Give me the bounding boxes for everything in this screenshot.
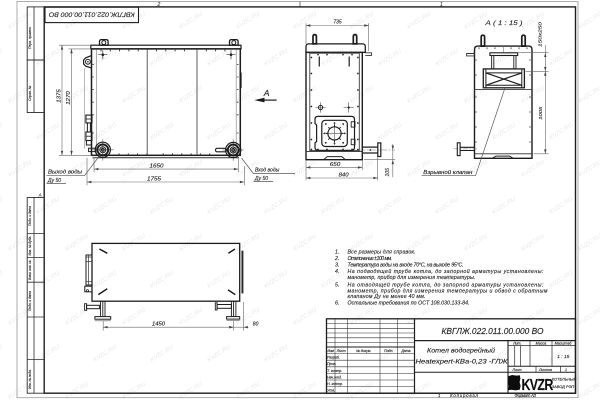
svg-text:№ докум.: № докум. (356, 349, 371, 353)
svg-text:Подп. и дата: Подп. и дата (28, 291, 32, 311)
svg-text:Лист: Лист (511, 368, 521, 372)
svg-text:Отклонение ±100 мм.: Отклонение ±100 мм. (348, 256, 393, 262)
svg-text:KVZR: KVZR (522, 376, 554, 394)
svg-text:Лист: Лист (336, 349, 346, 353)
svg-text:Разраб.: Разраб. (327, 356, 340, 360)
svg-text:А: А (38, 193, 42, 198)
svg-text:105: 105 (385, 168, 391, 177)
svg-text:Подп. и дата: Подп. и дата (28, 206, 32, 226)
svg-text:Вход воды: Вход воды (255, 168, 280, 174)
svg-text:Пров.: Пров. (327, 362, 336, 366)
svg-text:Все размеры для справок.: Все размеры для справок. (348, 249, 416, 255)
svg-text:6.: 6. (335, 301, 339, 307)
svg-text:манометр, прибор для измерения: манометр, прибор для измерения температу… (348, 275, 476, 281)
svg-text:4.: 4. (335, 269, 339, 275)
svg-text:Heatexpert-КВа-0,23 -ГЛЖ: Heatexpert-КВа-0,23 -ГЛЖ (416, 359, 509, 366)
svg-text:735: 735 (333, 20, 342, 26)
svg-text:Копировал: Копировал (450, 393, 479, 398)
svg-text:650: 650 (330, 162, 341, 168)
svg-text:Перв. примен.: Перв. примен. (28, 26, 32, 49)
svg-text:Т. контр.: Т. контр. (327, 369, 342, 373)
svg-text:Утв.: Утв. (327, 389, 335, 393)
svg-text:Выход воды: Выход воды (48, 170, 82, 176)
svg-text:150х250: 150х250 (538, 21, 543, 47)
svg-text:Формат А3: Формат А3 (515, 393, 537, 398)
svg-text:1755: 1755 (147, 176, 161, 182)
svg-text:КВГЛЖ.022.011.00.000 ВО: КВГЛЖ.022.011.00.000 ВО (442, 326, 544, 336)
svg-text:Дата: Дата (400, 349, 410, 353)
svg-text:Котел водогрейный: Котел водогрейный (427, 347, 495, 355)
svg-text:Ду 50: Ду 50 (254, 176, 268, 182)
svg-text:Взам. инв. №: Взам. инв. № (28, 260, 32, 280)
svg-text:80: 80 (253, 321, 259, 327)
svg-text:КВГЛЖ.022.011.00.000 ВО: КВГЛЖ.022.011.00.000 ВО (49, 10, 135, 17)
svg-text:1450: 1450 (152, 321, 165, 327)
svg-text:5.: 5. (335, 282, 339, 288)
svg-text:Инв. № подл.: Инв. № подл. (28, 369, 32, 389)
svg-text:840: 840 (339, 173, 349, 179)
svg-text:Масштаб: Масштаб (555, 342, 573, 346)
svg-text:Н. контр.: Н. контр. (327, 382, 343, 386)
svg-text:ЗАВОД РЭП: ЗАВОД РЭП (552, 384, 575, 389)
svg-text:1 : 15: 1 : 15 (557, 354, 569, 360)
svg-text:Масса: Масса (536, 342, 547, 346)
svg-text:1375: 1375 (57, 89, 63, 103)
svg-text:Температура воды на входе 70°С: Температура воды на входе 70°С, на выход… (348, 262, 464, 268)
svg-text:1270: 1270 (66, 91, 72, 105)
svg-text:1650: 1650 (150, 163, 164, 169)
svg-text:Инв. № дубл.: Инв. № дубл. (28, 236, 32, 256)
svg-text:Справ. №: Справ. № (28, 85, 32, 101)
svg-text:Нач.отд.: Нач.отд. (327, 375, 342, 379)
svg-text:Листов: Листов (538, 368, 552, 372)
svg-text:Лит.: Лит. (512, 342, 521, 346)
svg-text:А: А (263, 88, 270, 98)
svg-text:Взрывной клапан: Взрывной клапан (423, 169, 472, 176)
svg-text:Остальные требования по ОСТ 10: Остальные требования по ОСТ 108.030.133-… (348, 301, 470, 307)
svg-text:2.: 2. (334, 256, 339, 262)
svg-text:клапаном Ду не менее 40 мм.: клапаном Ду не менее 40 мм. (348, 294, 426, 300)
svg-text:Изм: Изм (327, 349, 334, 353)
svg-text:А ( 1 : 15 ): А ( 1 : 15 ) (484, 20, 522, 27)
svg-text:КОТЕЛЬНЫЙ: КОТЕЛЬНЫЙ (552, 377, 577, 382)
svg-text:3.: 3. (335, 262, 339, 268)
svg-text:Ду 50: Ду 50 (47, 178, 61, 184)
svg-text:Подп.: Подп. (384, 349, 393, 353)
svg-text:1.: 1. (335, 249, 339, 255)
svg-text:1: 1 (565, 368, 567, 372)
svg-text:1005: 1005 (538, 106, 543, 120)
